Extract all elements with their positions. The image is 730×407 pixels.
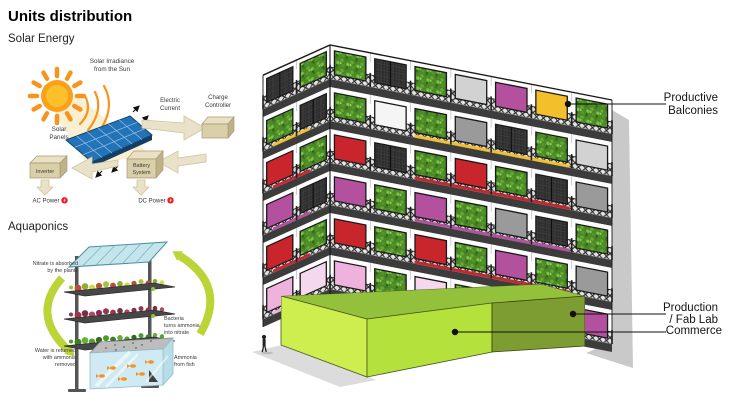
- leader-dot: [570, 311, 576, 317]
- label-solar-panels-1: Solar: [52, 126, 67, 133]
- label-nitrate-1: Nitrate is absorbed: [33, 261, 78, 267]
- aquaponics-diagram: Nitrate is absorbed by the plants Bacter…: [18, 240, 228, 407]
- label-battery-2: System: [133, 170, 151, 176]
- label-electric-current-2: Current: [160, 106, 180, 112]
- label-water-1: Water is returned: [35, 348, 76, 354]
- leader-dot: [565, 101, 571, 107]
- label-nitrate-2: by the plants: [47, 268, 78, 274]
- label-productive-line1: Productive: [618, 92, 718, 105]
- fish-tank: [90, 338, 173, 389]
- label-ammonia-2: from fish: [174, 362, 195, 368]
- dc-power-icon: [167, 197, 173, 203]
- ac-power-icon: [61, 197, 67, 203]
- tower-face-left: [262, 45, 331, 328]
- label-dc-power: DC Power: [138, 199, 165, 205]
- label-bacteria-3: into nitrate: [164, 330, 189, 336]
- label-charge-controller-2: Controller: [205, 103, 231, 109]
- page: Units distribution Solar Energy Aquaponi…: [0, 0, 730, 407]
- label-bacteria-2: turns ammonia: [164, 323, 200, 329]
- solar-energy-diagram: Solar Irradiance from the Sun Solar Pane…: [0, 46, 250, 216]
- section-heading-solar: Solar Energy: [8, 33, 74, 45]
- sun-core: [46, 85, 68, 107]
- charge-controller-box: [202, 117, 234, 138]
- glass-roof: [69, 242, 167, 267]
- label-production-line1: Production: [618, 302, 718, 314]
- arrow-battery-to-dc: [133, 180, 149, 195]
- label-solar-panels-2: Panels: [49, 134, 68, 141]
- cycle-arrow-left: [47, 278, 74, 356]
- label-production-fablab: Production / Fab Lab: [618, 302, 718, 326]
- label-commerce: Commerce: [618, 325, 722, 338]
- label-solar-irradiance-2: from the Sun: [94, 66, 131, 73]
- label-electric-current-1: Electric: [160, 98, 180, 104]
- label-productive-line2: Balconies: [618, 105, 718, 118]
- leader-dot: [452, 329, 458, 335]
- label-water-3: removed: [55, 362, 76, 368]
- label-ammonia-1: Ammonia: [174, 355, 197, 361]
- arrow-controller-to-battery: [158, 151, 206, 173]
- label-ac-power: AC Power: [32, 199, 59, 205]
- page-title: Units distribution: [8, 8, 132, 25]
- label-productive-balconies: Productive Balconies: [618, 92, 718, 118]
- label-charge-controller-1: Charge: [208, 95, 228, 101]
- section-heading-aquaponics: Aquaponics: [8, 221, 68, 233]
- building-illustration: [240, 30, 730, 407]
- label-battery-1: Battery: [133, 163, 150, 169]
- label-solar-irradiance-1: Solar Irradiance: [90, 58, 135, 65]
- label-bacteria-1: Bacteria: [164, 316, 184, 322]
- label-water-2: with ammonia: [42, 355, 76, 361]
- arrow-inverter-to-ac: [37, 180, 53, 195]
- label-inverter: Inverter: [36, 169, 54, 175]
